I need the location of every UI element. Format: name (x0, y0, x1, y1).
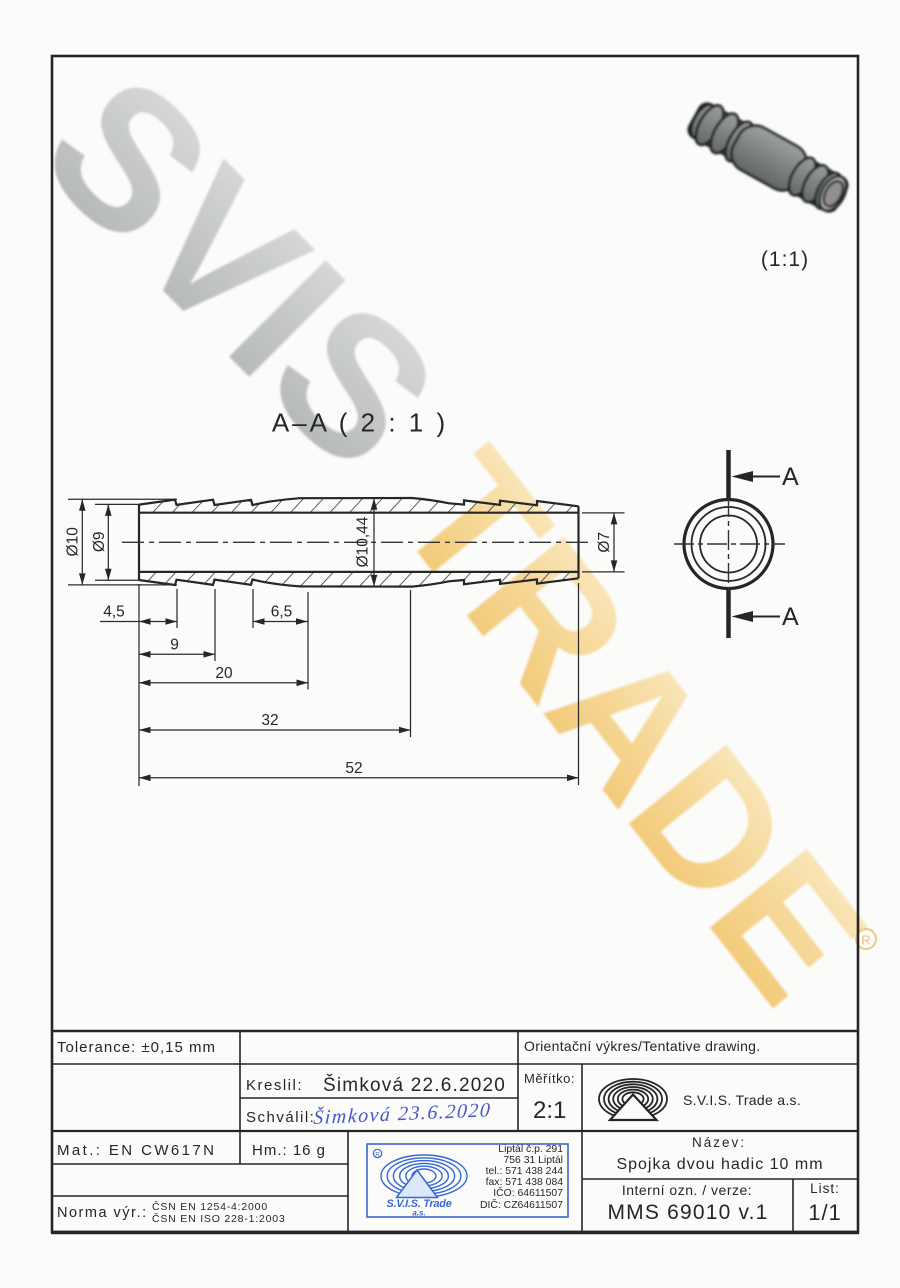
svg-text:List:: List: (810, 1181, 840, 1196)
svg-text:Spojka dvou hadic 10 mm: Spojka dvou hadic 10 mm (616, 1156, 823, 1173)
svg-text:Kreslil:: Kreslil: (246, 1077, 303, 1094)
svg-text:A–A ( 2 : 1 ): A–A ( 2 : 1 ) (272, 408, 448, 438)
svg-text:fax: 571 438 084: fax: 571 438 084 (486, 1177, 564, 1188)
svg-text:Liptál č.p. 291: Liptál č.p. 291 (498, 1144, 563, 1155)
svg-text:Interní ozn. / verze:: Interní ozn. / verze: (622, 1182, 752, 1198)
svg-text:Měřítko:: Měřítko: (524, 1071, 575, 1086)
svg-text:Ø10: Ø10 (65, 527, 82, 557)
svg-text:A: A (782, 603, 799, 631)
svg-text:Ø7: Ø7 (596, 532, 613, 553)
svg-text:Ø10,44: Ø10,44 (355, 516, 372, 567)
svg-text:ČSN EN ISO 228-1:2003: ČSN EN ISO 228-1:2003 (152, 1212, 286, 1225)
svg-text:756 31 Liptál: 756 31 Liptál (503, 1155, 563, 1166)
svg-text:(1:1): (1:1) (761, 248, 809, 271)
svg-text:R: R (375, 1151, 380, 1158)
svg-text:Hm.: 16 g: Hm.: 16 g (252, 1142, 326, 1159)
svg-text:32: 32 (261, 712, 278, 729)
svg-text:Šimková 23.6.2020: Šimková 23.6.2020 (313, 1097, 492, 1129)
svg-text:Tolerance: ±0,15 mm: Tolerance: ±0,15 mm (57, 1039, 216, 1056)
svg-text:4,5: 4,5 (103, 604, 125, 621)
svg-text:DIČ: CZ64611507: DIČ: CZ64611507 (480, 1198, 563, 1211)
svg-text:ČSN EN 1254-4:2000: ČSN EN 1254-4:2000 (152, 1200, 268, 1213)
svg-text:Mat.: EN CW617N: Mat.: EN CW617N (57, 1142, 216, 1159)
svg-text:2:1: 2:1 (533, 1097, 566, 1124)
svg-text:A: A (782, 463, 799, 491)
svg-text:MMS 69010 v.1: MMS 69010 v.1 (607, 1201, 768, 1224)
svg-text:Šimková 22.6.2020: Šimková 22.6.2020 (323, 1074, 506, 1096)
svg-text:Orientační výkres/Tentative dr: Orientační výkres/Tentative drawing. (524, 1038, 760, 1054)
svg-text:Norma výr.:: Norma výr.: (57, 1205, 148, 1221)
svg-text:R: R (861, 933, 870, 948)
svg-text:Schválil:: Schválil: (246, 1109, 315, 1126)
svg-text:9: 9 (170, 636, 179, 653)
svg-text:1/1: 1/1 (808, 1200, 842, 1225)
svg-text:6,5: 6,5 (271, 604, 293, 621)
svg-text:tel.: 571 438 244: tel.: 571 438 244 (486, 1166, 564, 1177)
svg-text:Ø9: Ø9 (91, 531, 108, 552)
svg-text:IČO: 64611507: IČO: 64611507 (493, 1186, 563, 1199)
svg-text:S.V.I.S. Trade a.s.: S.V.I.S. Trade a.s. (683, 1092, 801, 1108)
svg-text:20: 20 (215, 665, 233, 682)
svg-text:SVIS: SVIS (3, 34, 478, 509)
svg-text:a.s.: a.s. (412, 1209, 425, 1218)
svg-text:52: 52 (345, 760, 362, 777)
svg-text:Název:: Název: (692, 1135, 746, 1150)
